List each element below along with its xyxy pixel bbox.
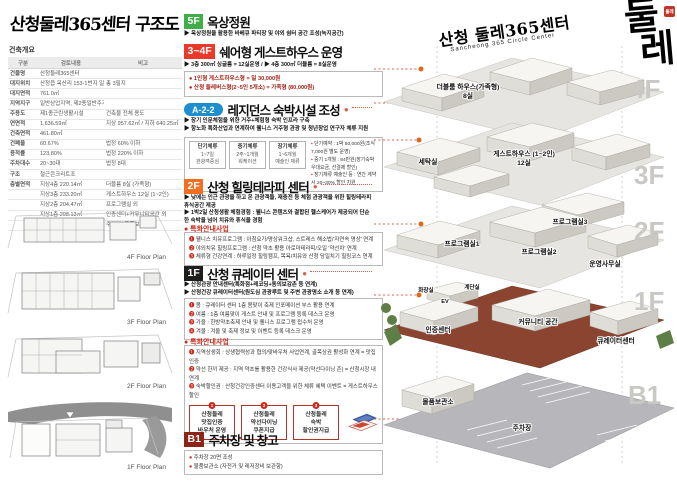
table-cell-note: 게스트하우스 12실 (1~2인) (104, 190, 182, 200)
section-1f-header: 1F 산청 큐레이터 센터 ● (184, 264, 373, 283)
bullet-item: ▶ 산청관광 안내센터(특화점+레코딩+동의보감촌 등 연계) (184, 282, 373, 290)
table-cell-note (104, 69, 182, 79)
section-5f-bullets: ▶ 옥상정원을 활용한 바베큐 파티장 및 야외 쉼터 공간 조성(녹지공간) (184, 31, 373, 39)
note-item: ● 주차장 20면 조성 (189, 454, 378, 463)
room-label: EV (441, 299, 449, 305)
section-1f-title: 산청 큐레이터 센터 (207, 264, 298, 283)
table-cell-name: 주용도 (8, 109, 38, 119)
table-cell-value: 지상3층 233.20㎡ (38, 190, 104, 200)
table-cell-note: 법정 8대 (104, 160, 182, 170)
bullet-item: ▶ 항노화 특화산업과 연계하여 웰니스 거주형 관광 및 청년창업 연구자 체… (184, 126, 373, 134)
voucher-line: 약선다이닝 (251, 419, 278, 427)
table-cell-note: 총 3필지 (104, 79, 182, 89)
brand-logo-char-2: 레 (638, 29, 676, 70)
voucher-line: 산청둘레 (201, 411, 222, 419)
stay-type-cell: 장기체류 1~6개월 예술인 체류 (269, 141, 306, 169)
section-1f-season-box: ❶ 봄 : 큐레이터 센터 1층 봄맞이 축제 인포메이션 부스 활용 연계❷ … (184, 298, 383, 340)
room-label: 프로그램실1 (444, 239, 479, 248)
section-b1-title: 주차장 및 창고 (208, 430, 278, 449)
stay-target: 예술인 체류 (271, 159, 304, 166)
table-cell-value: 산청둘레365센터 (38, 69, 104, 79)
table-row: 지상3층 233.20㎡ 게스트하우스 12실 (1~2인) (8, 190, 182, 200)
floor-label-2f: 2F (634, 216, 664, 246)
floor-plan-1f-label: 1F Floor Plan (6, 464, 178, 471)
bullet-item: ▶ 낮에는 인근 관광을 하고 온 관광객들, 재충전 등 체험 관광객을 위한… (184, 195, 373, 210)
room-label: 8실 (463, 91, 473, 100)
section-b1-header: B1 주차장 및 창고 (184, 430, 373, 449)
table-cell-value: 461.80㎡ (38, 129, 104, 139)
voucher-number-badge: 3 (313, 402, 320, 409)
stay-duration: 2주~1개월 (236, 152, 258, 158)
table-cell-value: 제1종근린생활시설 (38, 109, 104, 119)
section-5f-title: 옥상정원 (207, 12, 250, 31)
section-34f-notes-box: ● 1인형 게스트하우스형 = 일 30,000원● 산청 둘레버스형(2~5인… (184, 71, 383, 97)
stay-type: 중기체류 (231, 144, 264, 152)
room-label: 게스트하우스 (1~2인) (493, 149, 555, 158)
floor-label-1f: 1F (634, 286, 664, 316)
voucher-number-badge: 1 (209, 402, 216, 409)
overview-table-body: 건물명 산청둘레365센터 대지위치 산청읍 옥산리 153-1번지 일원 총 … (8, 69, 182, 231)
stay-type-cells: 단기체류 1~7일 관광객중심 중기체류 2주~1개월 워케이션 장기체류 1~… (189, 141, 306, 169)
table-cell-name: 건폐율 (8, 139, 38, 149)
note-item: ▪ 단기예약 : 1박 50,000원(조식 7,000원 별도 운영) (311, 141, 378, 157)
description-column: 5F 옥상정원 ▶ 옥상정원을 활용한 바베큐 파티장 및 야외 쉼터 공간 조… (184, 0, 374, 484)
floor-label-3f: 3F (634, 160, 664, 190)
note-item: ● 산청 둘레버스형(2~5인 5개소) = 가족형 (80,000원) (189, 84, 378, 93)
table-cell-value: 123.80% (38, 149, 104, 159)
table-row: 대지면적 761.0㎡ (8, 89, 182, 99)
table-cell-name: 대지위치 (8, 79, 38, 89)
overview-label: 건축개요 (9, 45, 180, 55)
section-a22-title: 레지던스 숙박시설 조성 (228, 100, 340, 119)
table-cell-name: 건축면적 (8, 129, 38, 139)
room-label: 운영사무실 (589, 259, 620, 268)
table-cell-name: 대지면적 (8, 89, 38, 99)
table-cell-note: 법정 60% 이하 (104, 139, 182, 149)
section-34f-bullets: ▶ 3층 300㎡ 싱글룸 = 12실운영 / ▶ 4층 300㎡ 더블룸 = … (184, 62, 373, 70)
table-cell-value: 1,636.59㎡ (38, 119, 104, 129)
brand: 산청 둘레365센터 Sancheong 365 Circle Center 둘… (438, 2, 677, 88)
table-cell-name: 용적률 (8, 149, 38, 159)
table-cell-note: 법정 220% 이하 (104, 149, 182, 159)
table-row: 층별면적 지상4층 220.14㎡ 더블룸 8실 (가족형) (8, 180, 182, 190)
voucher-number-badge: 2 (261, 402, 268, 409)
room-label: 화장실 (418, 286, 433, 294)
table-cell-value: 지상4층 220.14㎡ (38, 180, 104, 190)
table-cell-name: 구조 (8, 170, 38, 180)
section-a22-bullets: ▶ 장기 인문체험을 위한 거주+체험형 숙박 인프라 구축▶ 항노화 특화산업… (184, 118, 373, 133)
floor-plan-4f-label: 4F Floor Plan (6, 254, 178, 261)
room-label: 큐레이터센터 (597, 336, 635, 345)
floor-plan-2f-drawing (6, 333, 174, 381)
stay-type: 단기체류 (191, 144, 224, 152)
badge-1f: 1F (184, 266, 203, 280)
note-item: ❸ 숙박할인권 : 산청건강인증센터 이용고객을 위한 체류 혜택 이벤트 = … (189, 383, 378, 400)
section-2f-bullets: ▶ 낮에는 인근 관광을 하고 온 관광객들, 재충전 등 체험 관광객을 위한… (184, 195, 373, 225)
voucher-line: 산청둘레 (253, 411, 274, 419)
stay-type-cell: 중기체류 2주~1개월 워케이션 (229, 141, 266, 169)
table-cell-name: 층별면적 (8, 180, 38, 190)
table-cell-note: 프로그램실 외 (104, 200, 182, 210)
room-label: 프로그램실3 (552, 217, 587, 226)
table-header: 구분 (8, 57, 38, 69)
note-item: ❷ 여름 : 1층 여름맞이 게스트 안내 및 프로그램 등록 데스크 운영 (189, 311, 378, 320)
section-5f-header: 5F 옥상정원 (184, 12, 373, 31)
table-row: 건축면적 461.80㎡ (8, 129, 182, 139)
room-label: 커뮤니티 공간 (518, 317, 558, 326)
table-cell-value: 철근콘크리트조 (38, 170, 104, 180)
section-2f-notes-box: ❶ 웰니스 치유프로그램 : 아침요가/명상워크샵, 스트레스 해소법/'자연속… (184, 232, 383, 266)
floor-plan-3f: 3F Floor Plan (6, 267, 178, 326)
stay-type-cell: 단기체류 1~7일 관광객중심 (189, 141, 226, 169)
floor-plan-4f-drawing (6, 210, 174, 252)
stay-duration: 1~6개월 (279, 152, 297, 158)
leader-dot-icon: ● (302, 269, 307, 278)
table-cell-name: 건물명 (8, 69, 38, 79)
voucher-line: 산청둘레 (305, 411, 326, 419)
bullet-item: ▶ 장기 인문체험을 위한 거주+체험형 숙박 인프라 구축 (184, 118, 373, 126)
note-item: ❸ 체류형 건강연계 : 하루일정 힐링캠프, 목욕/치유와 산청 당일치기 힐… (189, 253, 378, 262)
table-cell-note: 건축물 전체 용도 (104, 109, 182, 119)
badge-2f: 2F (184, 179, 203, 193)
table-cell-name: 연면적 (8, 119, 38, 129)
table-row: 용적률 123.80% 법정 220% 이하 (8, 149, 182, 159)
table-header: 검토내용 (38, 57, 104, 69)
room-label: 계단실 (464, 283, 479, 291)
note-item: ● 물품보관소 (자전거 및 레저장비 보관함) (189, 463, 378, 472)
room-label: 물품보관소 (422, 397, 454, 406)
badge-34f: 3~4F (184, 44, 215, 58)
floor-plans: 4F Floor Plan 3F Floor Plan (6, 210, 178, 474)
section-2f-header: 2F 산청 힐링테라피 센터 ● (184, 177, 373, 196)
floor-plan-3f-label: 3F Floor Plan (6, 319, 178, 326)
bullet-item: ▶ 옥상정원을 활용한 바베큐 파티장 및 야외 쉼터 공간 조성(녹지공간) (184, 31, 373, 39)
table-row: 연면적 1,636.59㎡ 지상 957.62㎡ / 지하 640.25㎡ (8, 119, 182, 129)
section-a22-header: A-2-2 레지던스 숙박시설 조성 ● (184, 100, 373, 119)
table-cell-name (8, 190, 38, 200)
badge-5f: 5F (184, 14, 203, 28)
table-cell-note: 더블룸 8실 (가족형) (104, 180, 182, 190)
table-cell-name (8, 200, 38, 210)
table-row: 대지위치 산청읍 옥산리 153-1번지 일원 총 3필지 (8, 79, 182, 89)
section-1f-bullets: ▶ 산청관광 안내센터(특화점+레코딩+동의보감촌 등 연계)▶ 산청건강 큐레… (184, 282, 373, 297)
table-row: 건폐율 60.67% 법정 60% 이하 (8, 139, 182, 149)
badge-a22: A-2-2 (184, 103, 223, 116)
table-cell-value: 60.67% (38, 139, 104, 149)
floor-label-b1: B1 (628, 380, 661, 410)
note-item: ❹ 겨울 : 겨울 및 축제 정보 및 이벤트 등록 데스크 운영 (189, 328, 378, 337)
section-2f-title: 산청 힐링테라피 센터 (207, 177, 309, 196)
left-column: 산청둘레365센터 구조도 건축개요 구분 검토내용 비고 건물명 산청둘레36… (8, 6, 180, 231)
table-header: 비고 (104, 57, 182, 69)
room-label: 프로그램실2 (521, 247, 556, 256)
bullet-item: ▶ 산청건강 큐레이터센터(원도심 관광루트 및 주변 관광명소 소개 등 연계… (184, 290, 373, 298)
note-item: ❷ 야외치유 힐링프로그램 : 산청 약초 활용 아로마테라피/오일 '약선차'… (189, 245, 378, 254)
section-1f-special-notes: ❶ 지역상생회 : 상생협력성과 협의/맞바우처 사업연계, 골목상권 활성화 … (189, 349, 378, 400)
table-cell-note (104, 170, 182, 180)
stay-target: 워케이션 (231, 159, 264, 166)
table-cell-name: 지역지구 (8, 99, 38, 109)
floor-plan-2f-label: 2F Floor Plan (6, 383, 178, 390)
note-item: ❶ 웰니스 치유프로그램 : 아침요가/명상워크샵, 스트레스 해소법/'자연속… (189, 236, 378, 245)
leader-line (321, 184, 372, 185)
note-item: ❸ 가을 : 한방약초축제 안내 및 웰니스 프로그램 접수처 운영 (189, 319, 378, 328)
table-row: 지역지구 일반상업지역, 제2종일반주거지역 (8, 99, 182, 109)
floor-plan-3f-drawing (6, 267, 174, 317)
stay-duration: 1~7일 (201, 152, 214, 158)
section-34f-header: 3~4F 쉐어형 게스트하우스 운영 (184, 42, 373, 61)
room-label: 12실 (517, 158, 531, 167)
note-item: ❶ 봄 : 큐레이터 센터 1층 봄맞이 축제 인포메이션 부스 활용 연계 (189, 302, 378, 311)
table-cell-value: 일반상업지역, 제2종일반주거지역 (38, 99, 104, 109)
floor-plan-2f: 2F Floor Plan (6, 333, 178, 390)
table-cell-value: 산청읍 옥산리 153-1번지 일원 (38, 79, 104, 89)
brand-logo: 둘 레 둘레 (611, 2, 675, 88)
poster: 산청둘레365센터 구조도 건축개요 구분 검토내용 비고 건물명 산청둘레36… (0, 0, 677, 484)
voucher-line: 숙박 (311, 419, 322, 427)
table-cell-value: 761.0㎡ (38, 89, 104, 99)
voucher-line: 맛집인증 (201, 419, 222, 427)
floor-plan-1f-drawing (6, 398, 174, 462)
bullet-item: ▶ 3층 300㎡ 싱글룸 = 12실운영 / ▶ 4층 300㎡ 더블룸 = … (184, 62, 373, 70)
leader-line (352, 107, 372, 108)
floor-plan-4f: 4F Floor Plan (6, 210, 178, 261)
table-cell-value: 지상2층 204.47㎡ (38, 200, 104, 210)
table-row: 주용도 제1종근린생활시설 건축물 전체 용도 (8, 109, 182, 119)
building-axonometric: 더블룸 하우스(가족형) 8실 4F 세탁실 게스트하우스 (1~2인) 12실… (372, 40, 677, 484)
table-cell-value: 20~30대 (38, 160, 104, 170)
page-title: 산청둘레365센터 구조도 (9, 10, 181, 35)
room-label: 세탁실 (419, 157, 438, 166)
stay-type: 장기체류 (271, 144, 304, 152)
leader-dot-icon: ● (313, 182, 318, 191)
table-row: 구조 철근콘크리트조 (8, 170, 182, 180)
brand-seal-icon: 둘레 (664, 6, 675, 17)
table-cell-note (104, 89, 182, 99)
floor-1f: 화장실 계단실 EV 인증센터 커뮤니티 공간 큐레이터센터 1F (381, 282, 674, 368)
table-row: 건물명 산청둘레365센터 (8, 69, 182, 79)
floor-2f: 프로그램실1 프로그램실2 프로그램실3 운영사무실 2F (384, 193, 664, 288)
leader-line (310, 271, 372, 272)
floor-plan-1f: 1F Floor Plan (6, 398, 178, 471)
note-item: ● 1인형 게스트하우스형 = 일 30,000원 (189, 75, 378, 84)
leader-dot-icon: ● (344, 105, 349, 114)
note-item: ❶ 지역상생회 : 상생협력성과 협의/맞바우처 사업연계, 골목상권 활성화 … (189, 349, 378, 366)
table-cell-note (104, 99, 182, 109)
overview-table: 구분 검토내용 비고 건물명 산청둘레365센터 대지위치 산청읍 옥산리 (8, 57, 182, 231)
section-34f-title: 쉐어형 게스트하우스 운영 (219, 42, 342, 61)
note-item: ❷ 약선 한끼 제공 : 지역 약초를 활용한 건강식사 제공(약선다이닝 존)… (189, 366, 378, 383)
table-cell-note: 지상 957.62㎡ / 지하 640.25㎡ (104, 119, 182, 129)
room-label: 주차장 (513, 423, 533, 432)
note-item: ▪ 중기 1개월 : 84만원(장기숙박 우대요금, 선결제 할인) (311, 157, 378, 173)
table-row: 지상2층 204.47㎡ 프로그램실 외 (8, 200, 182, 210)
stay-target: 관광객중심 (191, 159, 224, 166)
floor-b1: 물품보관소 주차장 B1 (384, 373, 674, 468)
room-label: 인증센터 (425, 325, 450, 334)
table-cell-note (104, 129, 182, 139)
badge-b1: B1 (184, 432, 204, 446)
table-cell-name: 주차대수 (8, 160, 38, 170)
section-b1-notes-box: ● 주차장 20면 조성● 물품보관소 (자전거 및 레저장비 보관함) (184, 450, 383, 475)
table-row: 주차대수 20~30대 법정 8대 (8, 160, 182, 170)
